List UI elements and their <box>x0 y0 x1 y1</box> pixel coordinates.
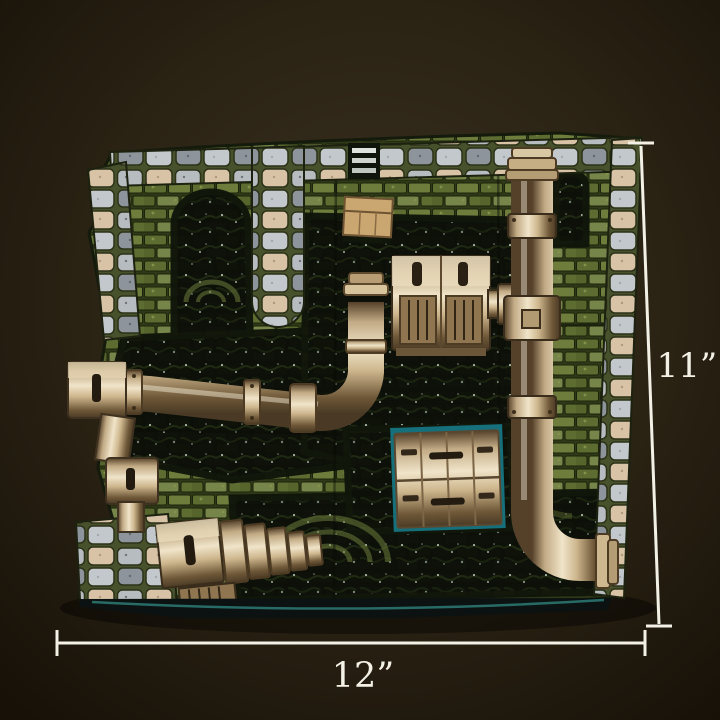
supply-crate <box>343 197 393 244</box>
height-label: 11” <box>657 346 718 386</box>
product-scene: 11” 12” <box>0 0 720 720</box>
pipe-junction-box-left <box>68 362 126 418</box>
product-image: 11” 12” <box>0 0 720 720</box>
water-arch-top-left <box>174 192 250 350</box>
cobble-center-strip <box>252 146 304 327</box>
water-top-right-nook <box>556 173 586 244</box>
drain-grate <box>390 424 506 532</box>
width-label: 12” <box>332 656 394 696</box>
terrain-tile <box>68 133 642 618</box>
ladder <box>348 143 380 179</box>
